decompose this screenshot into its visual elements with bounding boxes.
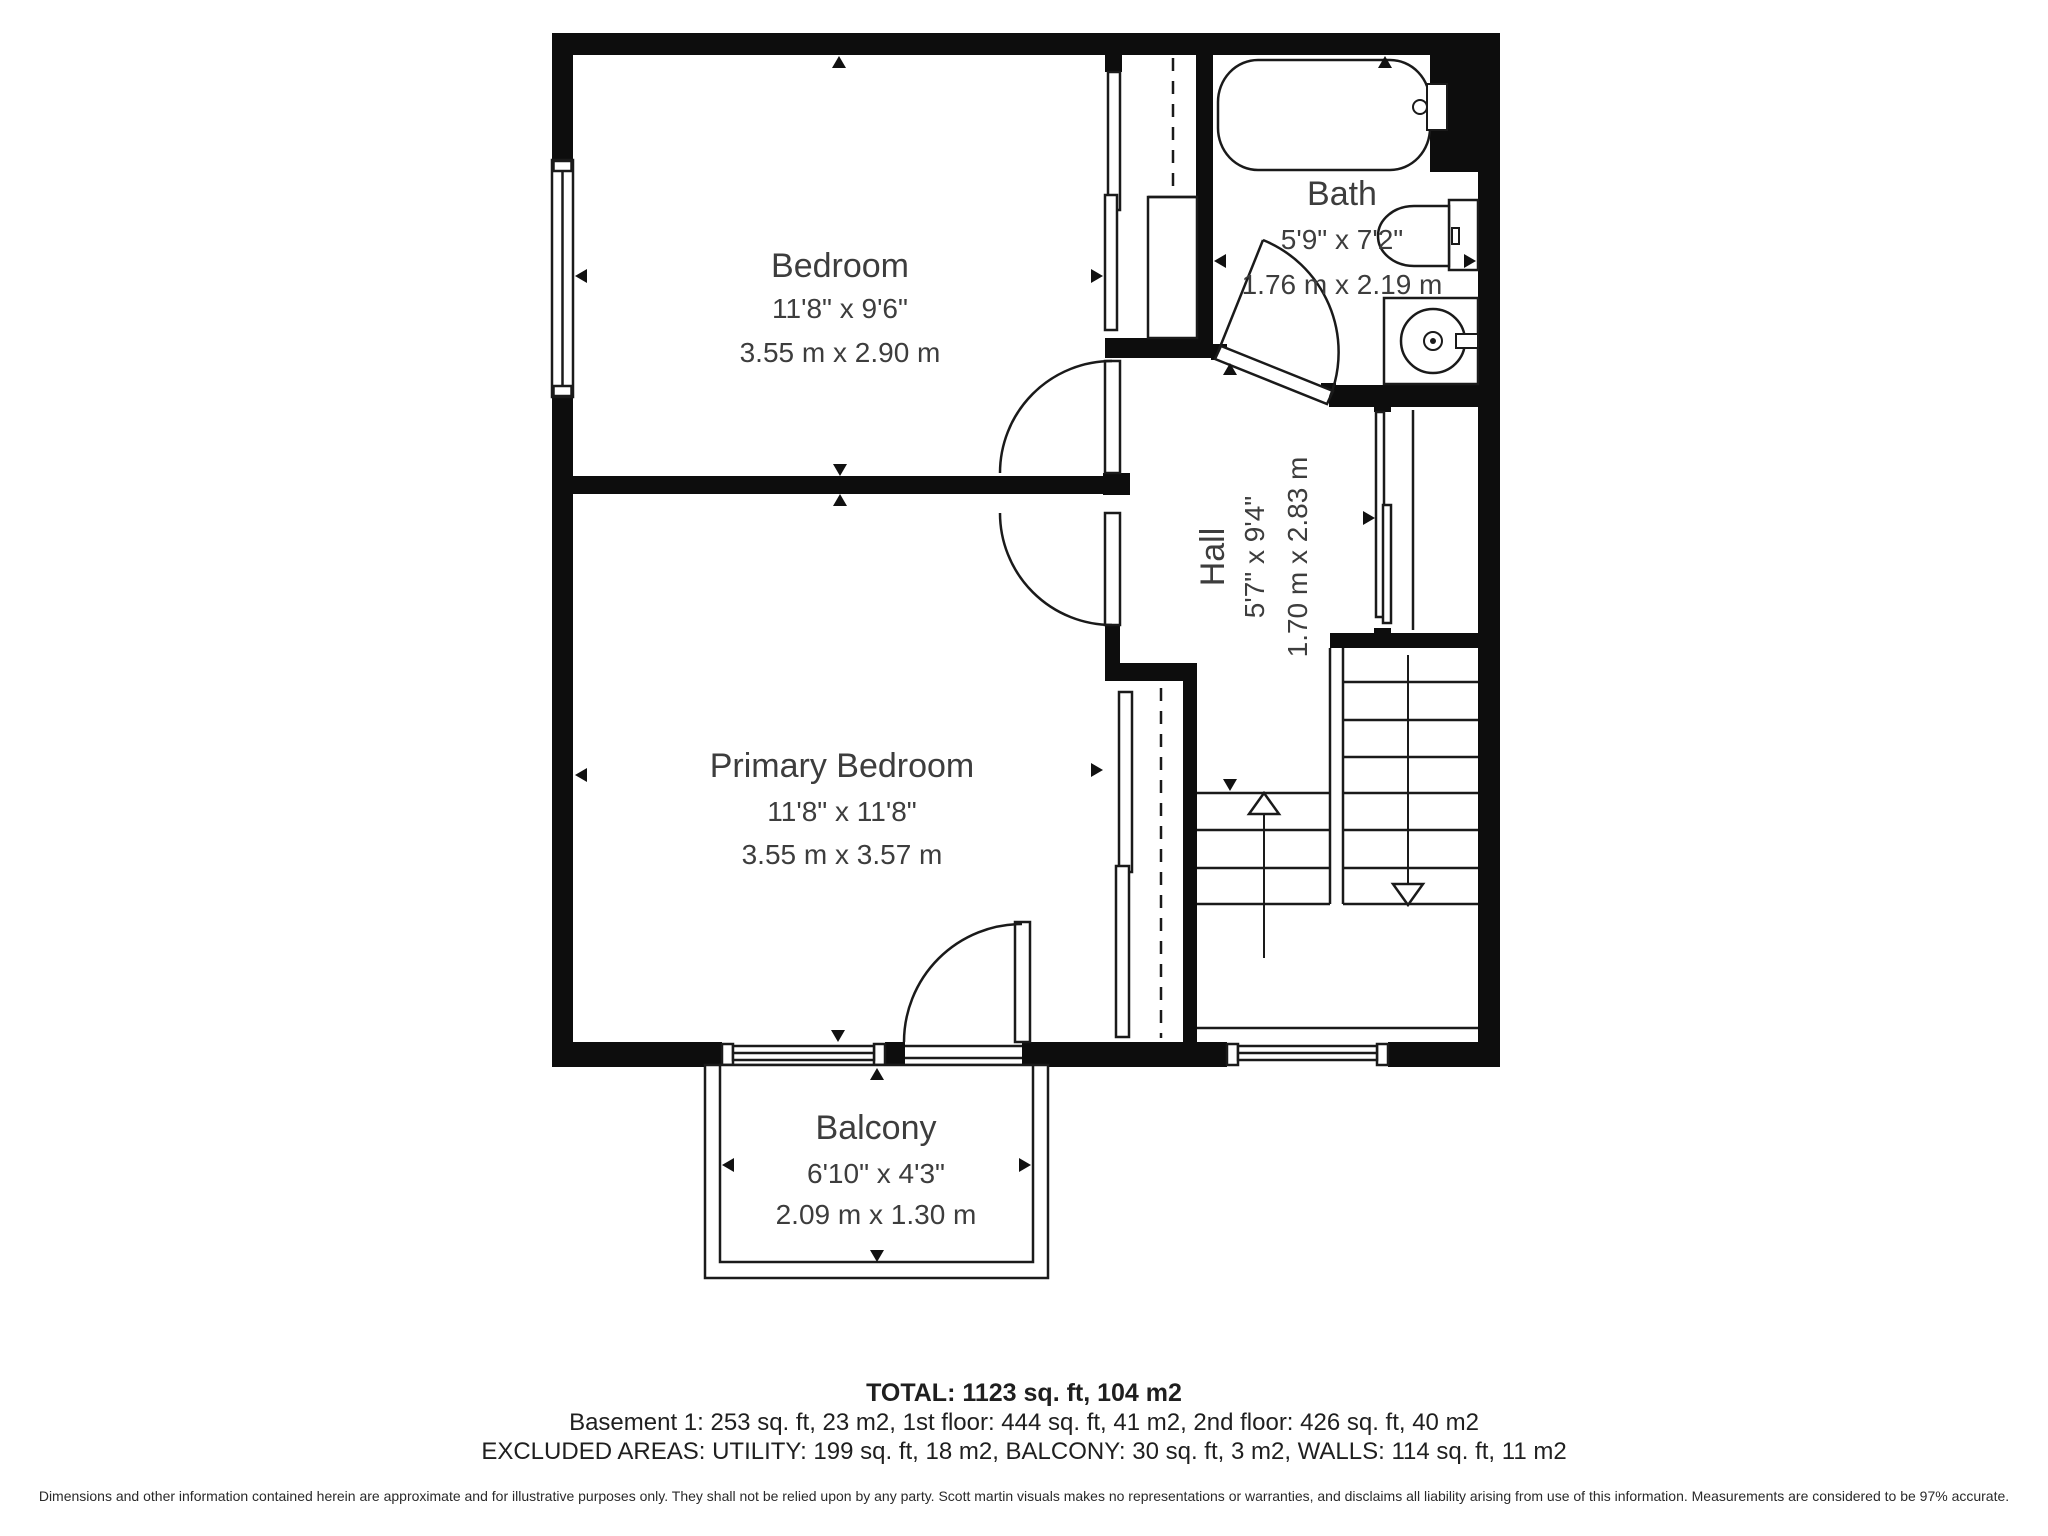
balcony-door-sill bbox=[905, 1046, 1022, 1058]
marker-primary-right bbox=[1091, 763, 1103, 777]
marker-divider-lower bbox=[833, 494, 847, 506]
sliding-door-panel bbox=[1105, 195, 1117, 330]
balcony-door-icon bbox=[904, 922, 1030, 1042]
marker-primary-bottom bbox=[831, 1030, 845, 1042]
sliding-door-panel bbox=[1119, 692, 1132, 872]
bedroom-window-icon bbox=[552, 160, 573, 397]
marker-primary-left bbox=[575, 768, 587, 782]
primary-metric: 3.55 m x 3.57 m bbox=[742, 839, 943, 870]
primary-closet bbox=[1116, 688, 1161, 1038]
disclaimer-text: Dimensions and other information contain… bbox=[0, 1488, 2048, 1504]
floor-areas-text: Basement 1: 253 sq. ft, 23 m2, 1st floor… bbox=[0, 1409, 2048, 1437]
floor-plan-drawing: Bedroom 11'8" x 9'6" 3.55 m x 2.90 m Bat… bbox=[0, 0, 2048, 1536]
primary-window-icon bbox=[722, 1044, 885, 1065]
balcony-imperial: 6'10" x 4'3" bbox=[807, 1158, 945, 1189]
bedroom-imperial: 11'8" x 9'6" bbox=[772, 293, 908, 324]
marker-hall-bottom bbox=[1223, 779, 1237, 791]
landing-window-icon bbox=[1227, 1044, 1388, 1065]
bathtub-icon bbox=[1218, 60, 1447, 170]
primary-imperial: 11'8" x 11'8" bbox=[767, 796, 916, 827]
bedroom-name: Bedroom bbox=[771, 247, 909, 285]
bath-door-icon bbox=[1215, 240, 1339, 404]
stair-railing bbox=[1376, 410, 1413, 630]
stairs-up-arrow-icon bbox=[1249, 793, 1279, 958]
bedroom-door-icon bbox=[1000, 361, 1120, 473]
room-label-hall: Hall 5'7" x 9'4" 1.70 m x 2.83 m bbox=[1194, 457, 1313, 658]
bedroom-closet bbox=[1105, 58, 1197, 338]
sliding-door-panel bbox=[1108, 72, 1120, 210]
marker-divider-upper bbox=[833, 464, 847, 476]
sink-icon bbox=[1384, 298, 1478, 384]
bath-fixtures bbox=[1218, 60, 1478, 384]
bath-name: Bath bbox=[1307, 175, 1377, 213]
marker-bedroom-right bbox=[1091, 269, 1103, 283]
marker-hall-right bbox=[1363, 511, 1375, 525]
hall-name: Hall bbox=[1194, 528, 1232, 587]
hall-imperial: 5'7" x 9'4" bbox=[1239, 496, 1270, 618]
marker-bath-left bbox=[1214, 254, 1226, 268]
primary-door-icon bbox=[1000, 513, 1120, 625]
room-label-primary-bedroom: Primary Bedroom 11'8" x 11'8" 3.55 m x 3… bbox=[710, 747, 975, 870]
marker-bedroom-left bbox=[575, 269, 587, 283]
bath-imperial: 5'9" x 7'2" bbox=[1281, 224, 1403, 255]
marker-bedroom-top bbox=[832, 56, 846, 68]
bedroom-metric: 3.55 m x 2.90 m bbox=[740, 337, 941, 368]
balcony-name: Balcony bbox=[816, 1109, 937, 1147]
total-area-text: TOTAL: 1123 sq. ft, 104 m2 bbox=[0, 1379, 2048, 1408]
hall-metric: 1.70 m x 2.83 m bbox=[1282, 457, 1313, 658]
floor-plan-page: Bedroom 11'8" x 9'6" 3.55 m x 2.90 m Bat… bbox=[0, 0, 2048, 1536]
room-label-bedroom: Bedroom 11'8" x 9'6" 3.55 m x 2.90 m bbox=[740, 247, 941, 368]
balcony-metric: 2.09 m x 1.30 m bbox=[776, 1199, 977, 1230]
sliding-door-panel bbox=[1116, 866, 1129, 1037]
primary-name: Primary Bedroom bbox=[710, 747, 975, 785]
bath-metric: 1.76 m x 2.19 m bbox=[1242, 269, 1443, 300]
excluded-areas-text: EXCLUDED AREAS: UTILITY: 199 sq. ft, 18 … bbox=[0, 1438, 2048, 1466]
